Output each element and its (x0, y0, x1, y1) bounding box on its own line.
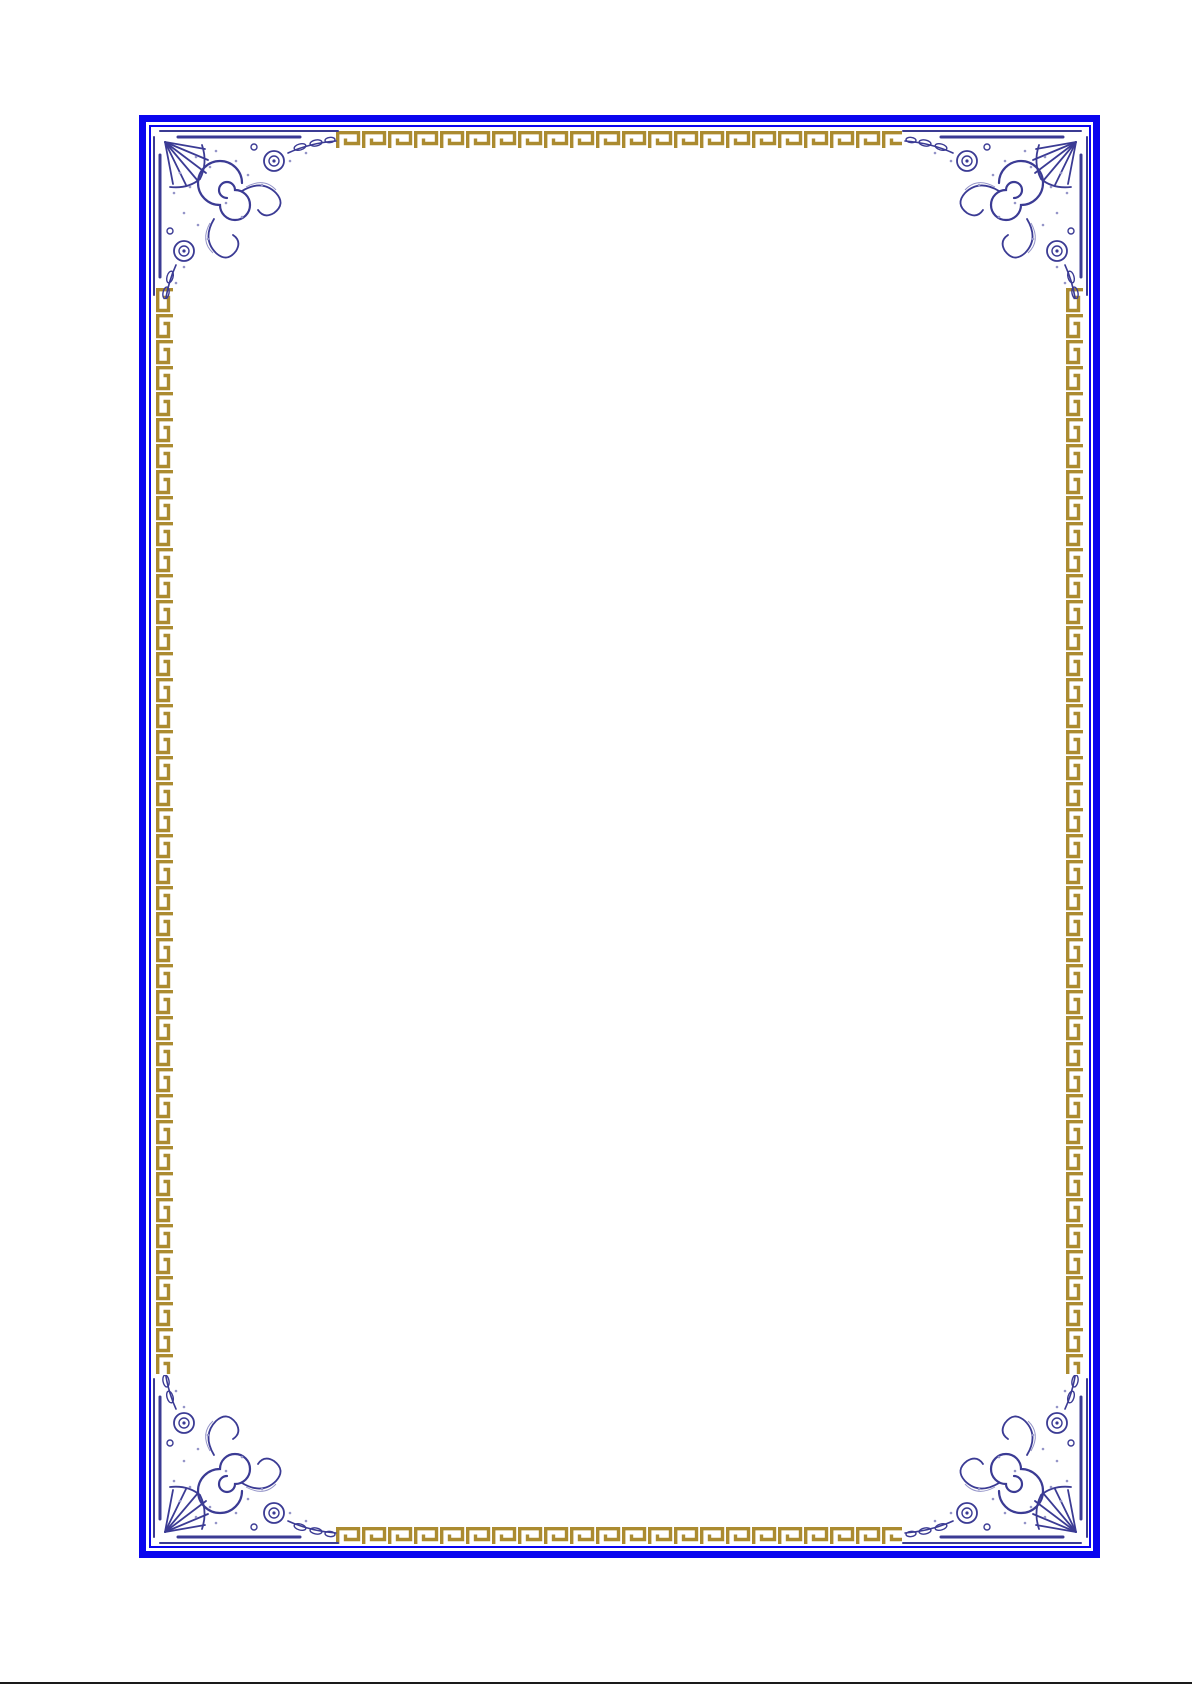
floral-corner-ornament-top-left-icon (150, 127, 340, 299)
greek-key-strip-left (156, 288, 173, 1374)
greek-key-strip-top (336, 131, 902, 148)
certificate-page: { "meta": { "page_type": "decorative-cer… (0, 0, 1192, 1685)
floral-corner-ornament-bottom-left-icon (150, 1375, 340, 1547)
page-bottom-rule (0, 1682, 1192, 1684)
certificate-body-area (200, 320, 990, 1340)
floral-corner-ornament-top-right-icon (901, 127, 1091, 299)
greek-key-strip-right (1066, 288, 1083, 1374)
greek-key-strip-bottom (336, 1527, 902, 1544)
floral-corner-ornament-bottom-right-icon (901, 1375, 1091, 1547)
